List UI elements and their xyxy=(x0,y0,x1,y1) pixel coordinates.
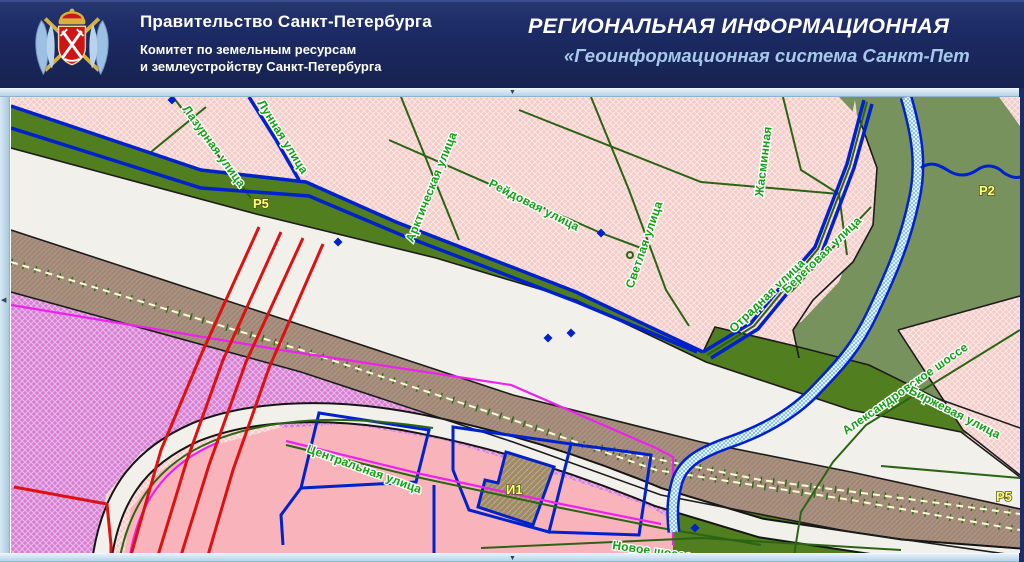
system-subtitle: «Геоинформационная система Санкт-Пет xyxy=(528,45,1024,67)
org-subtitle: Комитет по земельным ресурсам и землеуст… xyxy=(140,41,432,75)
map-canvas[interactable]: Лазурная улицаЛунная улицаАрктическая ул… xyxy=(11,97,1020,553)
left-splitter[interactable]: ◀ xyxy=(0,97,10,553)
map-viewport[interactable]: Лазурная улицаЛунная улицаАрктическая ул… xyxy=(10,97,1020,553)
collapse-left-arrow-icon[interactable]: ◀ xyxy=(1,297,6,304)
zone-label: И1 xyxy=(506,482,523,497)
header: Правительство Санкт-Петербурга Комитет п… xyxy=(0,0,1024,88)
zone-label: Р2 xyxy=(979,183,995,198)
collapse-down-arrow-icon[interactable]: ▼ xyxy=(509,555,516,562)
system-block: РЕГИОНАЛЬНАЯ ИНФОРМАЦИОННАЯ «Геоинформац… xyxy=(528,14,1024,67)
zone-label: Р5 xyxy=(253,196,269,211)
system-title: РЕГИОНАЛЬНАЯ ИНФОРМАЦИОННАЯ xyxy=(528,14,1024,39)
org-title: Правительство Санкт-Петербурга xyxy=(140,12,432,32)
application-window: Правительство Санкт-Петербурга Комитет п… xyxy=(0,0,1024,562)
collapse-up-arrow-icon[interactable]: ▼ xyxy=(509,89,516,96)
org-subtitle-line1: Комитет по земельным ресурсам xyxy=(140,41,432,58)
top-splitter[interactable]: ▼ xyxy=(0,88,1019,97)
zone-label: Р5 xyxy=(996,489,1012,504)
coat-of-arms-icon xyxy=(26,7,118,89)
org-subtitle-line2: и землеустройству Санкт-Петербурга xyxy=(140,58,432,75)
bottom-splitter[interactable]: ▼ xyxy=(0,553,1019,562)
organization-block: Правительство Санкт-Петербурга Комитет п… xyxy=(140,12,432,75)
